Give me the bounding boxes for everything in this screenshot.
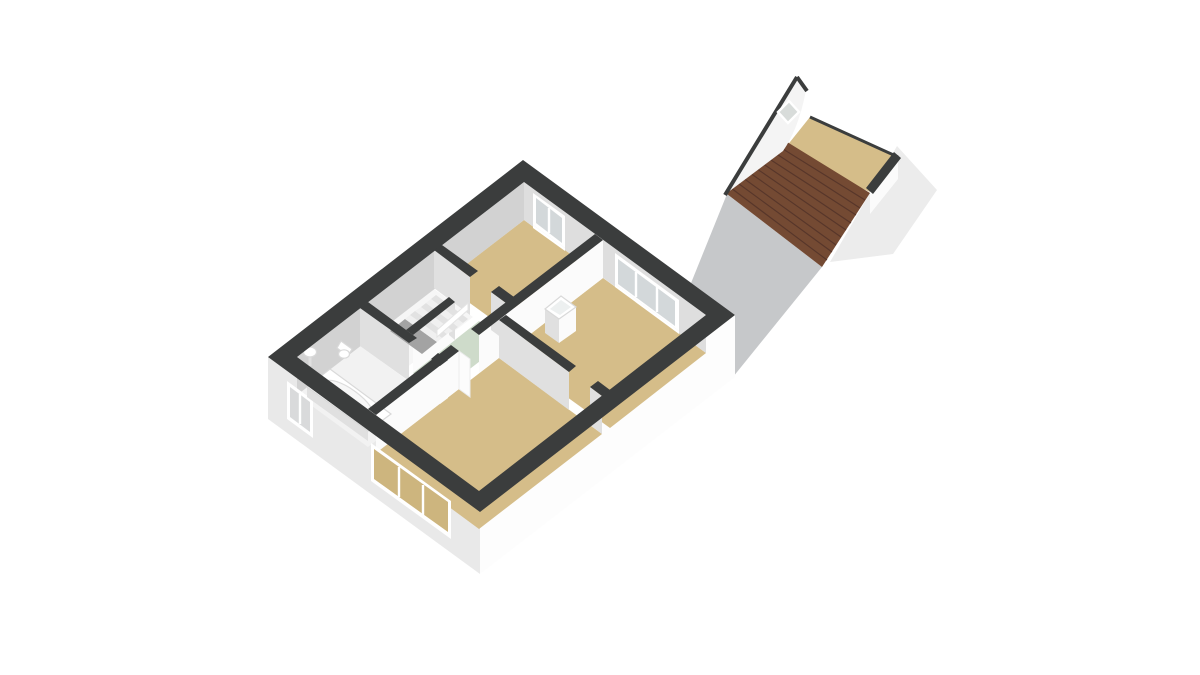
toilet-bowl (339, 350, 350, 358)
main-building (268, 160, 735, 574)
floorplan-3d-render (0, 0, 1200, 675)
floorplan-scene (0, 0, 1200, 675)
bedroom-left-door-leaf (459, 351, 470, 397)
